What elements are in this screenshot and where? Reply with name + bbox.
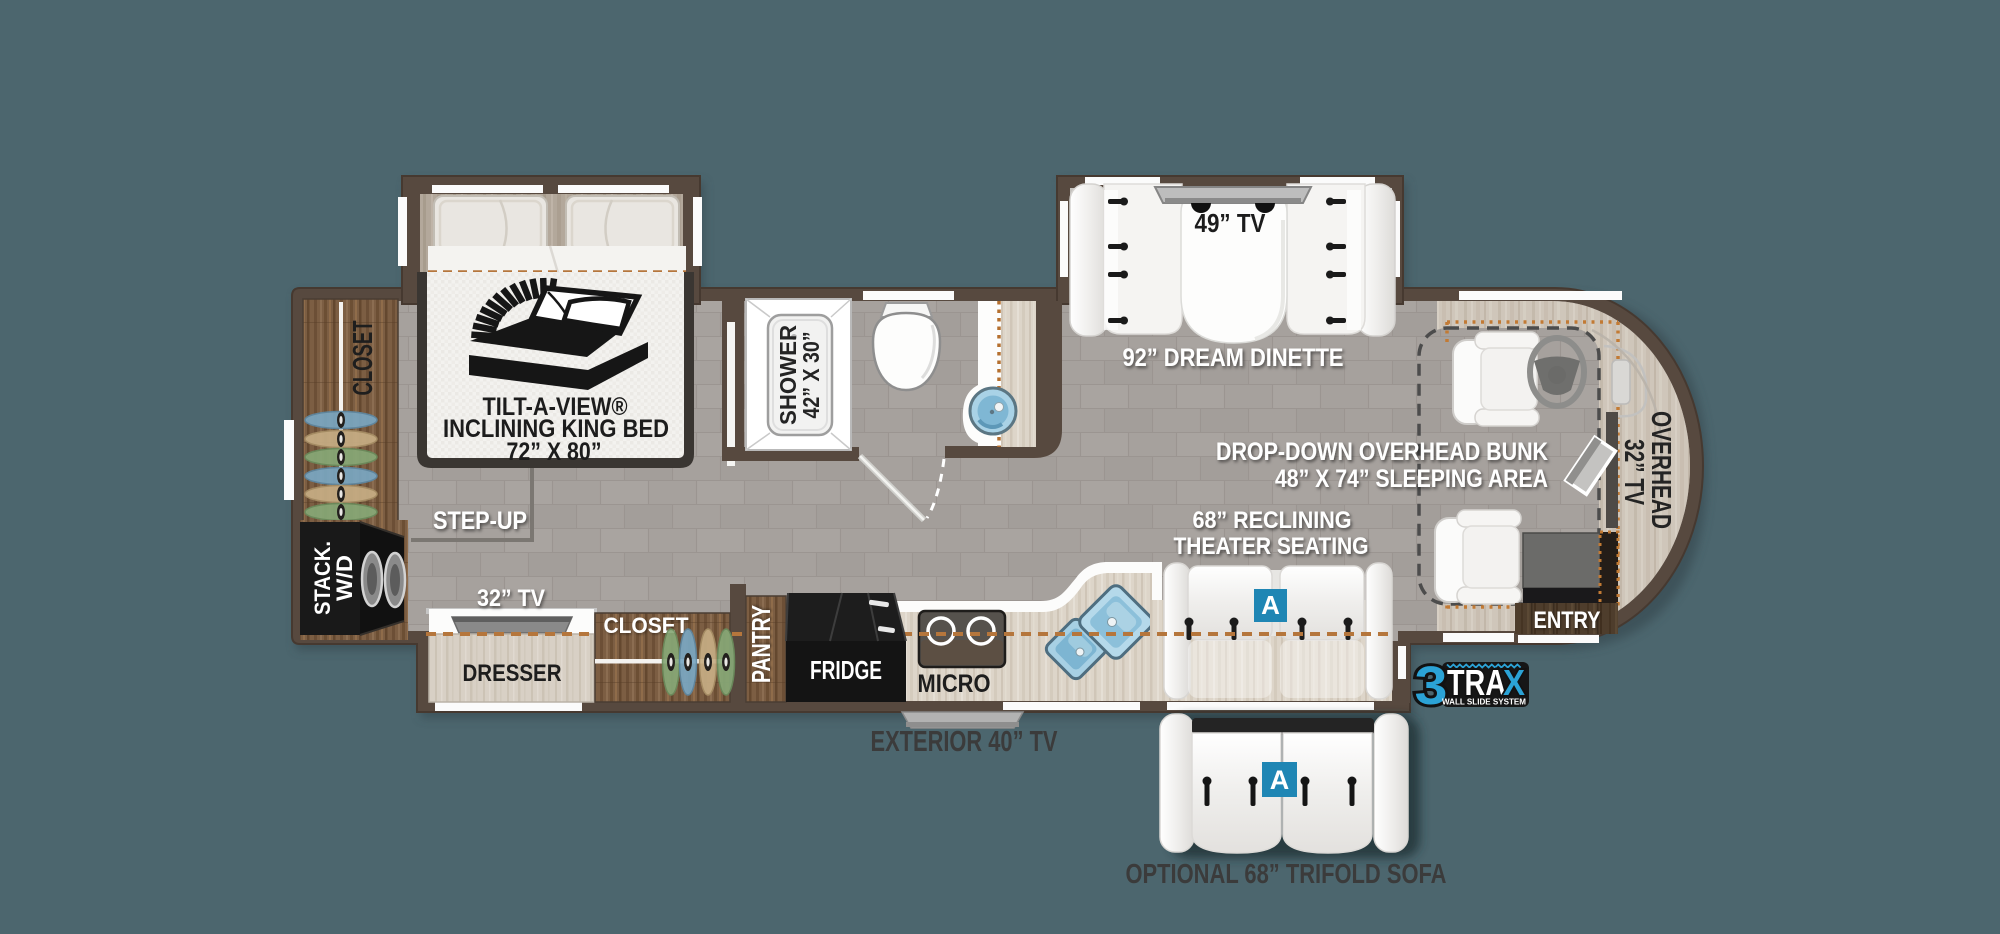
svg-text:MICRO: MICRO xyxy=(918,670,991,698)
svg-text:3: 3 xyxy=(1415,656,1448,716)
svg-text:48” X 74” SLEEPING AREA: 48” X 74” SLEEPING AREA xyxy=(1275,465,1548,493)
svg-text:OPTIONAL 68” TRIFOLD SOFA: OPTIONAL 68” TRIFOLD SOFA xyxy=(1126,858,1447,889)
svg-text:PANTRY: PANTRY xyxy=(746,605,776,683)
svg-text:32” TV: 32” TV xyxy=(477,585,545,612)
svg-text:49” TV: 49” TV xyxy=(1195,208,1267,238)
svg-text:92” DREAM DINETTE: 92” DREAM DINETTE xyxy=(1123,344,1344,372)
svg-text:CLOSET: CLOSET xyxy=(347,321,378,396)
svg-text:THEATER SEATING: THEATER SEATING xyxy=(1174,533,1369,560)
svg-text:DROP-DOWN OVERHEAD BUNK: DROP-DOWN OVERHEAD BUNK xyxy=(1216,438,1548,466)
svg-text:WALL SLIDE SYSTEM: WALL SLIDE SYSTEM xyxy=(1442,697,1526,707)
svg-text:42” X 30”: 42” X 30” xyxy=(798,332,824,419)
svg-text:ENTRY: ENTRY xyxy=(1534,607,1601,634)
svg-text:A: A xyxy=(1261,590,1280,620)
svg-text:DRESSER: DRESSER xyxy=(463,660,562,687)
svg-text:STEP-UP: STEP-UP xyxy=(433,507,527,535)
svg-text:72” X 80”: 72” X 80” xyxy=(507,438,602,466)
svg-text:EXTERIOR 40” TV: EXTERIOR 40” TV xyxy=(871,726,1058,758)
svg-text:W/D: W/D xyxy=(332,555,357,601)
svg-text:OVERHEAD: OVERHEAD xyxy=(1646,411,1677,529)
svg-text:FRIDGE: FRIDGE xyxy=(810,655,882,685)
svg-text:A: A xyxy=(1270,765,1290,795)
svg-text:68” RECLINING: 68” RECLINING xyxy=(1193,507,1352,534)
svg-text:32” TV: 32” TV xyxy=(1619,439,1650,505)
